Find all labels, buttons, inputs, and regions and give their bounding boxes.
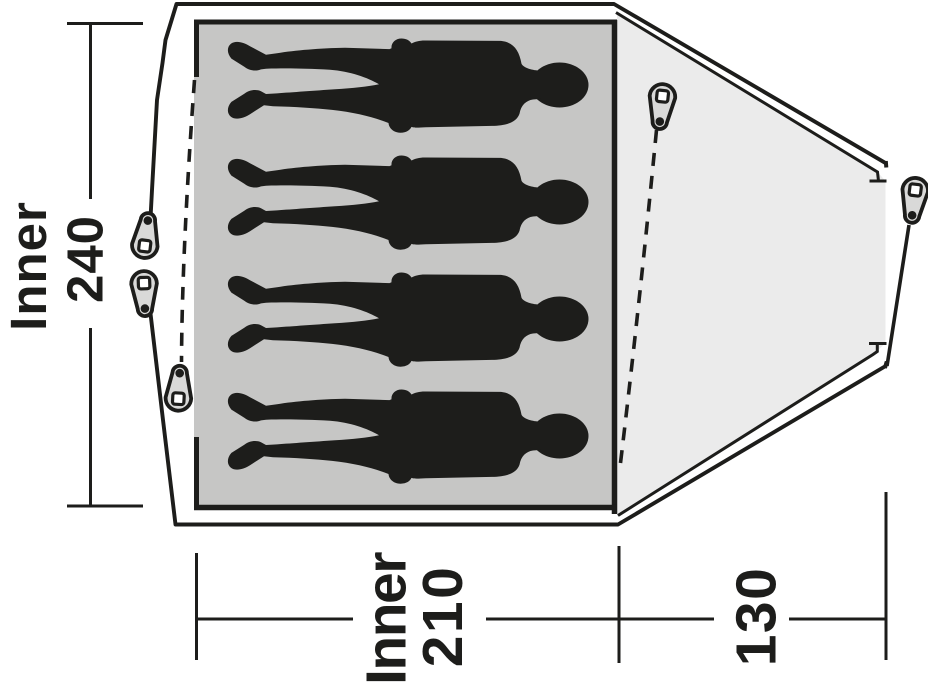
- svg-text:Inner: Inner: [0, 201, 57, 331]
- svg-text:210: 210: [411, 565, 475, 668]
- svg-text:130: 130: [725, 567, 789, 667]
- svg-text:Inner: Inner: [355, 552, 419, 685]
- svg-text:240: 240: [57, 215, 114, 303]
